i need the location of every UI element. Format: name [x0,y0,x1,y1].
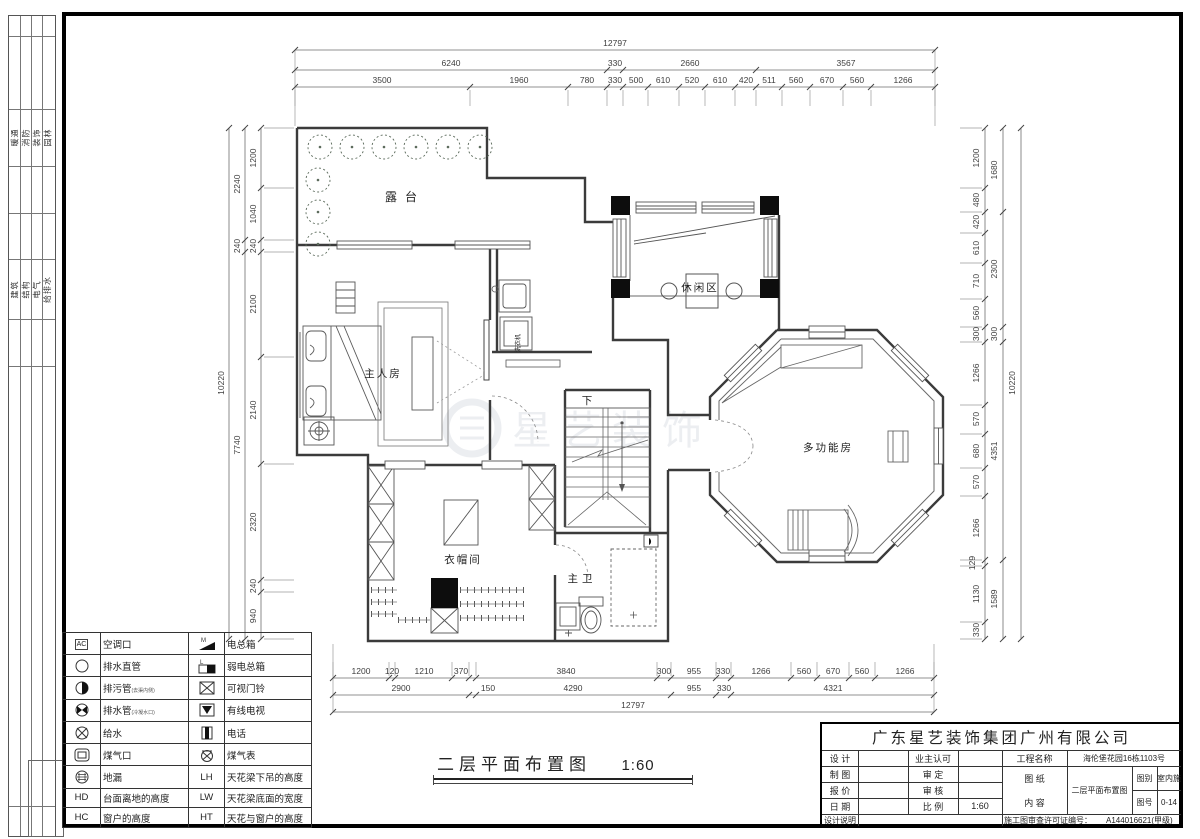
date-label: 日 期 [822,798,858,814]
svg-text:680: 680 [971,444,981,458]
sliding-door-leaf [484,320,489,380]
dim-labels-right: 1200 480 420 610 710 560 300 1266 570 68… [967,148,1017,637]
svg-text:610: 610 [713,75,727,85]
owner-label: 业主认可 [908,750,958,766]
svg-text:300: 300 [989,327,999,341]
svg-text:1589: 1589 [989,589,999,608]
ht-code: HT [189,808,225,828]
svg-text:330: 330 [608,75,622,85]
drawing-title-text: 二层平面布置图 [437,755,591,774]
svg-text:511: 511 [762,75,776,85]
approve-label: 审 定 [908,766,958,782]
svg-text:10220: 10220 [216,371,226,395]
svg-text:2900: 2900 [392,683,411,693]
legend-label: 空调口 [101,633,189,655]
legend-label: 天花梁底面的宽度 [225,788,312,808]
gas-meter-icon [189,744,225,766]
master-bedroom [303,282,489,446]
weak-box-icon: L [189,655,225,677]
svg-text:240: 240 [248,579,258,593]
door-sightlines [437,341,484,403]
svg-text:240: 240 [232,239,242,253]
svg-text:4321: 4321 [824,683,843,693]
legend-label: 排水管(冷凝水口) [101,699,189,721]
svg-text:1960: 1960 [510,75,529,85]
black-column [431,578,458,608]
svg-text:560: 560 [789,75,803,85]
lw-code: LW [189,788,225,808]
svg-text:2320: 2320 [248,512,258,531]
svg-text:940: 940 [248,609,258,623]
svg-text:1266: 1266 [971,518,981,537]
svg-text:1200: 1200 [248,148,258,167]
dim-labels-bottom: 1200120121037038403009553301266560670560… [352,666,915,710]
ac-icon: AC [63,633,101,655]
quote-label: 报 价 [822,782,858,798]
svg-text:480: 480 [971,193,981,207]
column-detail [304,417,334,445]
svg-text:330: 330 [717,683,731,693]
legend-label: 天花与窗户的高度 [225,808,312,828]
content-label: 内 容 [1002,790,1067,814]
svg-text:6240: 6240 [442,58,461,68]
sheet-label: 图 纸 [1002,766,1067,790]
label-down: 下 [582,395,595,407]
legend-label: 可视门铃 [225,677,312,699]
wall-fixture [336,282,355,313]
legend-label: 煤气口 [101,744,189,766]
label-bath: 主卫 [568,573,597,585]
title-underline-thick [433,778,693,780]
svg-text:420: 420 [739,75,753,85]
legend-label: 煤气表 [225,744,312,766]
svg-text:1266: 1266 [894,75,913,85]
speaker-icon [644,535,658,547]
toilet [579,597,603,633]
svg-text:330: 330 [716,666,730,676]
label-master: 主人房 [364,367,402,380]
sheet-no-value: 0-14 [1157,790,1181,814]
svg-text:610: 610 [971,241,981,255]
label-terrace: 露台 [385,189,425,204]
note-label: 设计说明 [822,814,858,826]
laundry-nook [499,280,560,367]
legend-label: 给水 [101,721,189,743]
svg-text:370: 370 [454,666,468,676]
svg-text:560: 560 [855,666,869,676]
dim-labels-top: 12797 624033026603567 350019607803305006… [373,38,913,85]
svg-text:330: 330 [971,623,981,637]
dim-labels-left: 1200 1040 240 2100 2140 2320 240 940 224… [216,148,258,623]
svg-text:12797: 12797 [603,38,627,48]
company-name: 广东星艺装饰集团广州有限公司 [822,724,1181,750]
svg-text:3500: 3500 [373,75,392,85]
category-value: 室内施 [1157,766,1181,790]
svg-text:1210: 1210 [415,666,434,676]
label-multi: 多功能房 [803,441,853,454]
svg-text:560: 560 [797,666,811,676]
leisure-railings [613,202,777,277]
svg-text:1266: 1266 [971,363,981,382]
hd-code: HD [63,788,101,808]
svg-text:7740: 7740 [232,435,242,454]
svg-text:3567: 3567 [837,58,856,68]
svg-text:670: 670 [820,75,834,85]
bathroom [556,535,658,637]
svg-text:129: 129 [967,556,977,570]
svg-text:670: 670 [826,666,840,676]
legend-label: 天花梁下吊的高度 [225,766,312,788]
svg-text:1266: 1266 [752,666,771,676]
legend-label: 地漏 [101,766,189,788]
svg-text:240: 240 [248,239,258,253]
floorplan-sheet: 暖通 消防 装饰 园林 建筑 结构 电气 给排水 星艺装饰 [0,0,1200,839]
svg-text:1200: 1200 [352,666,371,676]
svg-text:2300: 2300 [989,259,999,278]
svg-text:1040: 1040 [248,204,258,223]
legend-label: 排水直管 [101,655,189,677]
svg-text:12797: 12797 [621,700,645,710]
svg-text:520: 520 [685,75,699,85]
hc-code: HC [63,808,101,828]
lh-code: LH [189,766,225,788]
svg-text:150: 150 [481,683,495,693]
permit-label: 施工图审查许可证编号： [1004,814,1104,826]
title-block: 广东星艺装饰集团广州有限公司 设 计 业主认可 制 图 审 定 报 价 审 核 … [820,722,1183,828]
svg-text:2660: 2660 [681,58,700,68]
svg-text:120: 120 [385,666,399,676]
svg-text:4351: 4351 [989,441,999,460]
legend-label: 有线电视 [225,699,312,721]
svg-text:2140: 2140 [248,400,258,419]
water-supply-icon [63,721,101,743]
octagon-door-arcs [715,420,753,472]
svg-text:4290: 4290 [564,683,583,693]
legend-label: 窗户的高度 [101,808,189,828]
project-label: 工程名称 [1002,750,1067,766]
wardrobes [368,466,555,633]
label-washer: 洗衣机 [514,334,522,352]
svg-text:1266: 1266 [896,666,915,676]
phone-icon [189,721,225,743]
gas-port-icon [63,744,101,766]
design-label: 设 计 [822,750,858,766]
dimension-lines [229,50,1021,712]
bed-bench [412,337,433,410]
sewage-pipe-icon [63,677,101,699]
label-leisure: 休闲区 [681,281,719,294]
legend-table: AC 空调口 M 电总箱 排水直管 L 弱电总箱 排污管(去渠内侧) 可视门铃 … [62,632,312,828]
watermark: 星艺装饰 [446,402,712,454]
draft-label: 制 图 [822,766,858,782]
scale-value: 1:60 [958,798,1002,814]
title-underline-thin [433,783,693,784]
svg-text:1200: 1200 [971,148,981,167]
svg-text:300: 300 [657,666,671,676]
doorbell-icon [189,677,225,699]
svg-text:3840: 3840 [557,666,576,676]
svg-text:710: 710 [971,274,981,288]
category-label: 图别 [1132,766,1157,790]
floor-drain-icon [63,766,101,788]
legend-label: 排污管(去渠内侧) [101,677,189,699]
svg-text:610: 610 [656,75,670,85]
legend-label: 台面离地的高度 [101,788,189,808]
legend-label: 电话 [225,721,312,743]
svg-text:560: 560 [850,75,864,85]
svg-text:1130: 1130 [971,585,981,604]
legend-label: 电总箱 [225,633,312,655]
floor-drain-mark [630,612,637,619]
svg-text:570: 570 [971,412,981,426]
basin [556,603,580,637]
nook-window [506,360,560,367]
svg-text:560: 560 [971,306,981,320]
svg-text:500: 500 [629,75,643,85]
svg-text:2100: 2100 [248,294,258,313]
svg-text:570: 570 [971,475,981,489]
sheet-no-label: 图号 [1132,790,1157,814]
svg-text:10220: 10220 [1007,371,1017,395]
project-value: 海伦堡花园16栋1103号 [1067,750,1181,766]
drain-pipe-icon [63,655,101,677]
svg-text:330: 330 [608,58,622,68]
drawing-title: 二层平面布置图 1:60 [437,750,689,775]
water-pipe-icon [63,699,101,721]
content-value: 二层平面布置图 [1067,766,1132,814]
dimension-ticks [226,47,1024,715]
svg-text:M: M [201,638,206,644]
cable-tv-icon [189,699,225,721]
scale-label: 比 例 [908,798,958,814]
svg-text:420: 420 [971,215,981,229]
svg-text:955: 955 [687,666,701,676]
svg-text:955: 955 [687,683,701,693]
svg-text:780: 780 [580,75,594,85]
power-box-icon: M [189,633,225,655]
label-cloak: 衣帽间 [444,553,482,566]
svg-text:2240: 2240 [232,174,242,193]
svg-text:300: 300 [971,327,981,341]
review-label: 审 核 [908,782,958,798]
legend-label: 弱电总箱 [225,655,312,677]
cloakroom [368,461,555,633]
permit-value: A144016621(甲级) [1106,814,1181,826]
svg-text:1680: 1680 [989,160,999,179]
drawing-scale: 1:60 [621,757,654,774]
